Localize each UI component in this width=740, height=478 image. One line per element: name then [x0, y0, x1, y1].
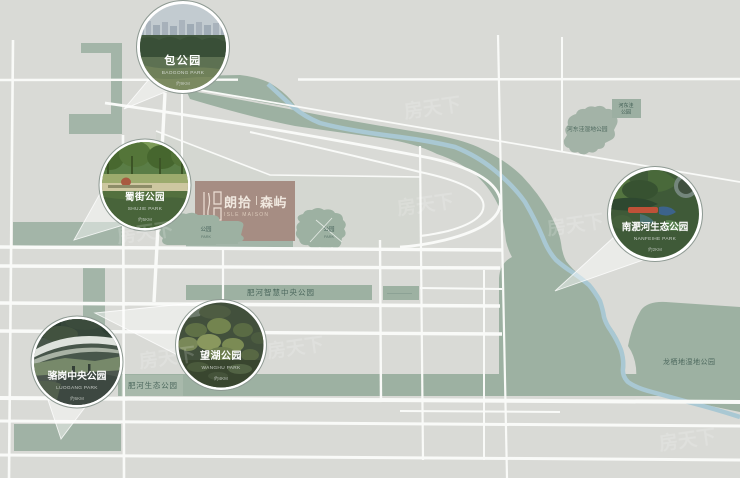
svg-text:公园: 公园 [621, 110, 631, 116]
svg-text:BAOGONG PARK: BAOGONG PARK [162, 70, 205, 76]
svg-text:河东洼湿地公园: 河东洼湿地公园 [567, 125, 608, 133]
svg-text:公园: 公园 [323, 226, 335, 233]
svg-text:ISLE MAISON: ISLE MAISON [224, 212, 269, 218]
svg-text:—————: ————— [387, 291, 412, 297]
svg-text:SHUJIE PARK: SHUJIE PARK [128, 206, 163, 212]
svg-text:NANFEIHE PARK: NANFEIHE PARK [634, 236, 677, 242]
svg-text:南淝河生态公园: 南淝河生态公园 [622, 221, 689, 233]
svg-text:LUOGANG PARK: LUOGANG PARK [56, 385, 98, 391]
svg-text:朗拾: 朗拾 [224, 195, 252, 210]
svg-text:公园: 公园 [200, 226, 212, 233]
svg-text:河东洼: 河东洼 [618, 102, 633, 109]
svg-text:约2KM: 约2KM [648, 246, 662, 253]
svg-text:WANGHU PARK: WANGHU PARK [201, 365, 241, 371]
svg-text:蜀街公园: 蜀街公园 [125, 191, 165, 203]
svg-text:PARK: PARK [324, 235, 335, 239]
svg-text:望湖公园: 望湖公园 [200, 349, 242, 362]
svg-text:骆岗中央公园: 骆岗中央公园 [48, 369, 107, 382]
svg-text:约6KM: 约6KM [70, 395, 84, 402]
svg-text:龙栖地湿地公园: 龙栖地湿地公园 [663, 357, 716, 366]
svg-text:肥河生态公园: 肥河生态公园 [128, 380, 178, 390]
svg-text:约9KM: 约9KM [176, 80, 190, 87]
svg-text:肥河智慧中央公园: 肥河智慧中央公园 [247, 287, 315, 297]
svg-text:约4KM: 约4KM [214, 375, 228, 382]
svg-text:包公园: 包公园 [163, 53, 202, 67]
svg-text:森屿: 森屿 [260, 195, 287, 210]
svg-text:PARK: PARK [201, 235, 212, 239]
